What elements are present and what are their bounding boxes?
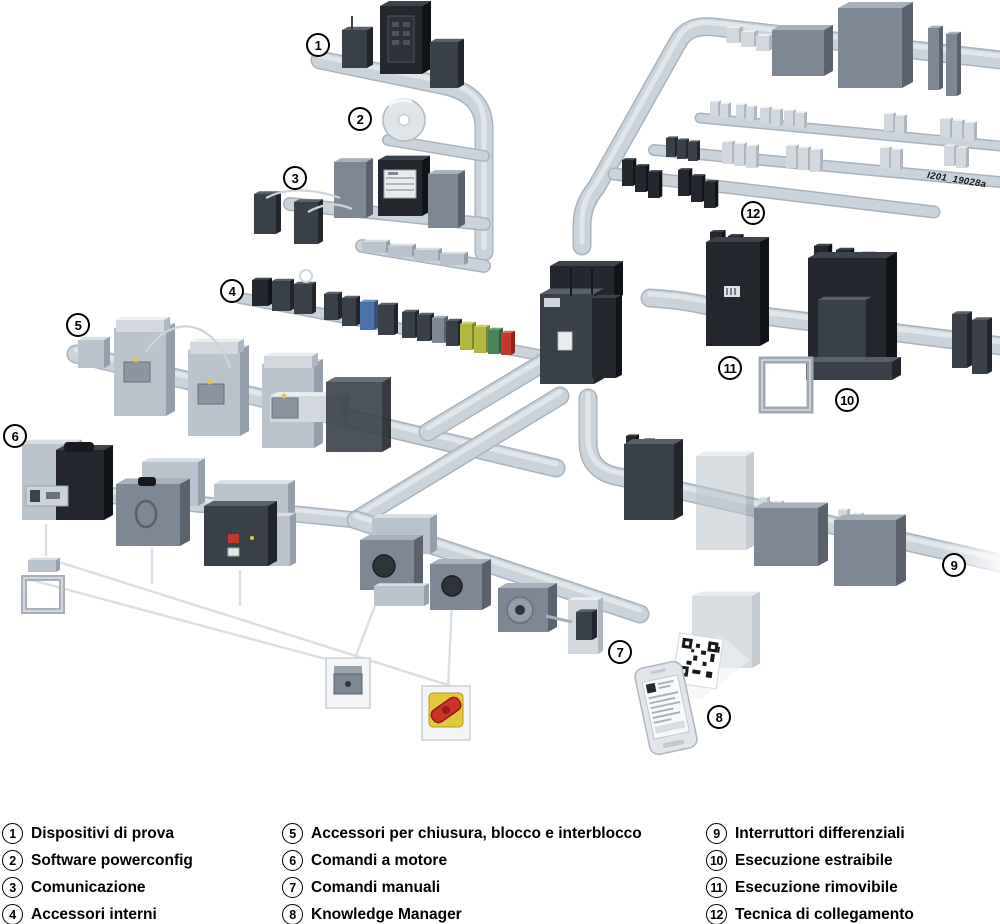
legend-item-12: 12Tecnica di collegamento	[706, 904, 914, 924]
legend-number: 6	[282, 850, 303, 871]
legend-item-11: 11Esecuzione rimovibile	[706, 877, 914, 898]
product-overview-diagram: I201_19028a 1Dispositivi di prova 2Softw…	[0, 0, 1000, 924]
legend-label: Interruttori differenziali	[735, 825, 905, 843]
drawout-breaker	[806, 244, 901, 380]
internal-accessories	[252, 278, 515, 355]
callout-2: 2	[348, 107, 372, 131]
legend-number: 2	[2, 850, 23, 871]
legend-label: Comunicazione	[31, 879, 146, 897]
legend-label: Comandi manuali	[311, 879, 440, 897]
legend-item-8: 8Knowledge Manager	[282, 904, 642, 924]
legend-label: Comandi a motore	[311, 852, 447, 870]
meter-display	[384, 170, 416, 198]
phase-barriers	[952, 311, 992, 374]
legend-label: Knowledge Manager	[311, 906, 462, 924]
callout-10: 10	[835, 388, 859, 412]
legend-item-2: 2Software powerconfig	[2, 850, 193, 871]
legend-column-1: 1Dispositivi di prova 2Software powercon…	[2, 823, 193, 924]
callout-11: 11	[718, 356, 742, 380]
legend-column-3: 9Interruttori differenziali 10Esecuzione…	[706, 823, 914, 924]
door-cutout-frame	[762, 360, 810, 410]
legend-number: 10	[706, 850, 727, 871]
legend-number: 11	[706, 877, 727, 898]
callout-5: 5	[66, 313, 90, 337]
callout-1: 1	[306, 33, 330, 57]
emergency-stop-handle-icon	[422, 686, 470, 740]
legend-number: 7	[282, 877, 303, 898]
callout-8: 8	[707, 705, 731, 729]
callout-12: 12	[741, 201, 765, 225]
legend-item-9: 9Interruttori differenziali	[706, 823, 914, 844]
legend-label: Esecuzione estraibile	[735, 852, 893, 870]
callout-3: 3	[283, 166, 307, 190]
legend-number: 4	[2, 904, 23, 924]
legend-label: Dispositivi di prova	[31, 825, 174, 843]
legend-label: Accessori interni	[31, 906, 157, 924]
legend-item-7: 7Comandi manuali	[282, 877, 642, 898]
cd-disc-icon	[383, 99, 425, 141]
legend-item-10: 10Esecuzione estraibile	[706, 850, 914, 871]
legend-item-4: 4Accessori interni	[2, 904, 193, 924]
legend-label: Accessori per chiusura, blocco e interbl…	[311, 825, 642, 843]
main-breaker	[540, 261, 623, 384]
wire-loop	[300, 270, 312, 282]
callout-4: 4	[220, 279, 244, 303]
legend-item-6: 6Comandi a motore	[282, 850, 642, 871]
legend-number: 9	[706, 823, 727, 844]
legend-column-2: 5Accessori per chiusura, blocco e interb…	[282, 823, 642, 924]
tester-screen	[388, 16, 414, 62]
legend-number: 5	[282, 823, 303, 844]
dip-switch	[724, 286, 740, 297]
legend-number: 1	[2, 823, 23, 844]
legend-label: Software powerconfig	[31, 852, 193, 870]
legend-item-5: 5Accessori per chiusura, blocco e interb…	[282, 823, 642, 844]
legend-item-1: 1Dispositivi di prova	[2, 823, 193, 844]
legend-number: 8	[282, 904, 303, 924]
legend-label: Esecuzione rimovibile	[735, 879, 898, 897]
callout-6: 6	[3, 424, 27, 448]
panel-handle	[326, 658, 370, 708]
callout-9: 9	[942, 553, 966, 577]
callout-7: 7	[608, 640, 632, 664]
legend-number: 12	[706, 904, 727, 924]
legend-item-3: 3Comunicazione	[2, 877, 193, 898]
rail-fade	[936, 510, 1000, 590]
locking-breakers	[78, 317, 391, 452]
residual-current-devices	[624, 434, 906, 586]
legend-label: Tecnica di collegamento	[735, 906, 914, 924]
legend-number: 3	[2, 877, 23, 898]
